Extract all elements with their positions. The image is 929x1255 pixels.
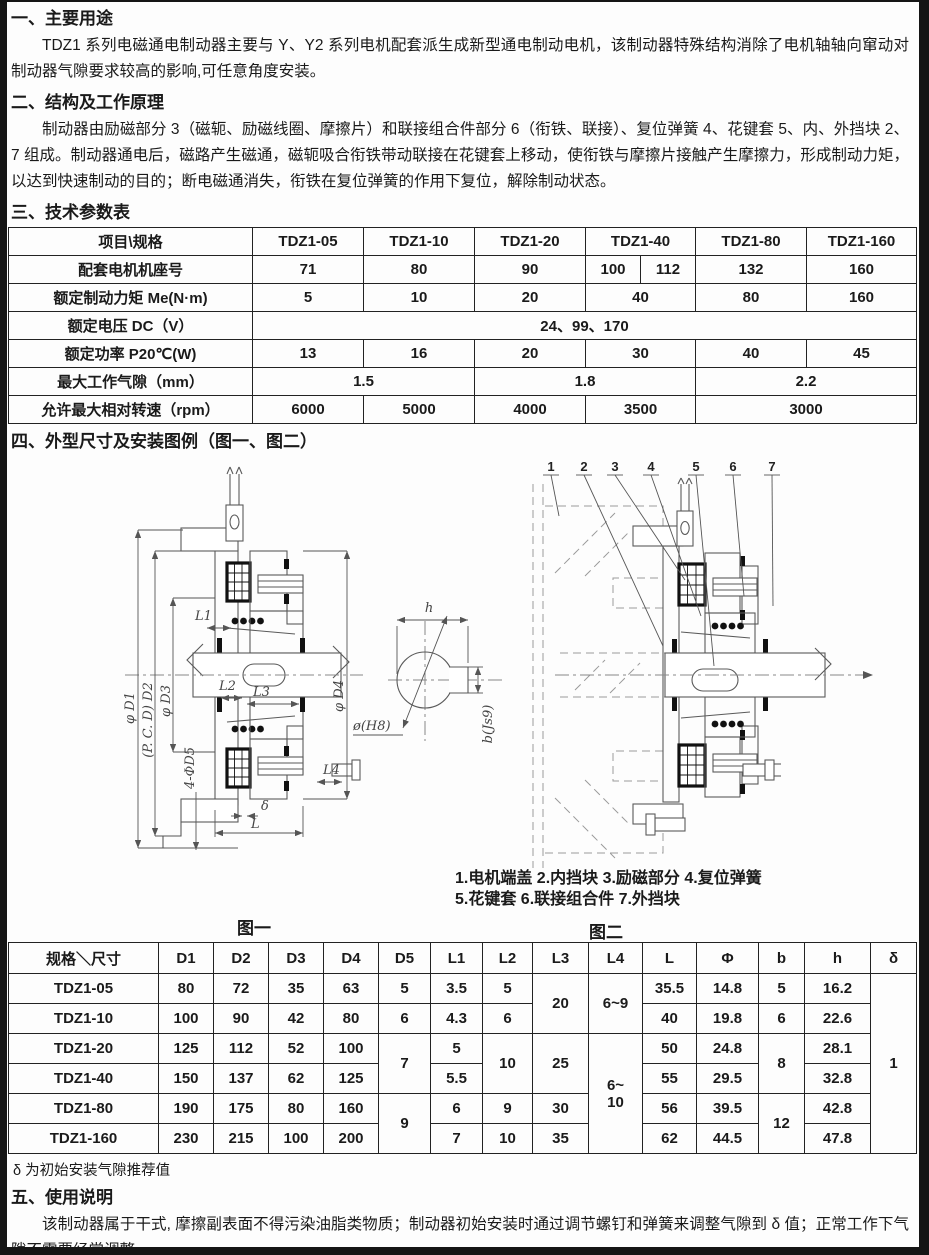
cell: 22.6 <box>805 1004 871 1034</box>
cell: 1.8 <box>475 368 696 396</box>
cell: 200 <box>324 1124 379 1154</box>
cell: 40 <box>643 1004 697 1034</box>
dim-label-key: b(Js9) <box>481 705 496 744</box>
table-row: TDZ1-20 125 112 52 100 7 5 10 25 6~ 10 5… <box>9 1034 917 1064</box>
cell: 12 <box>759 1094 805 1154</box>
row-label: 额定制动力矩 Me(N·m) <box>9 284 253 312</box>
cell: 30 <box>533 1094 589 1124</box>
header-cell: Φ <box>697 943 759 974</box>
row-label: 额定电压 DC（V） <box>9 312 253 340</box>
header-cell: TDZ1-160 <box>807 228 917 256</box>
cell: 24、99、170 <box>253 312 917 340</box>
cell: 100 <box>324 1034 379 1064</box>
row-label: 最大工作气隙（mm） <box>9 368 253 396</box>
cell: 45 <box>807 340 917 368</box>
cell: 9 <box>379 1094 431 1154</box>
dim-label-d3: φ D3 <box>159 685 174 717</box>
cell: 80 <box>324 1004 379 1034</box>
cell: 8 <box>759 1034 805 1094</box>
figure2-label: 图二 <box>589 918 623 943</box>
cell: 35.5 <box>643 974 697 1004</box>
cell: 2.2 <box>696 368 917 396</box>
cell: 6 <box>483 1004 533 1034</box>
header-cell: TDZ1-10 <box>364 228 475 256</box>
cell: 50 <box>643 1034 697 1064</box>
cell: 9 <box>483 1094 533 1124</box>
cell: 80 <box>159 974 214 1004</box>
figure1-label: 图一 <box>237 914 271 939</box>
cell: 90 <box>475 256 586 284</box>
header-cell: L <box>643 943 697 974</box>
cell: 6~9 <box>589 974 643 1034</box>
section1-heading: 一、主要用途 <box>11 7 919 31</box>
cell: 132 <box>696 256 807 284</box>
header-cell: L3 <box>533 943 589 974</box>
dim-label-bore: ø(H8) <box>352 719 391 734</box>
dim-label-l4: L4 <box>322 763 340 778</box>
cell: 40 <box>586 284 696 312</box>
cell: 10 <box>364 284 475 312</box>
callout-7: 7 <box>768 459 775 474</box>
dim-label-l2: L2 <box>218 679 236 694</box>
cell: 28.1 <box>805 1034 871 1064</box>
cell: 230 <box>159 1124 214 1154</box>
callout-1: 1 <box>547 459 554 474</box>
cell: 160 <box>807 256 917 284</box>
header-cell: L1 <box>431 943 483 974</box>
dim-label-d5: 4-ΦD5 <box>183 747 198 790</box>
figure2-parts-caption: 1.电机端盖 2.内挡块 3.励磁部分 4.复位弹簧 5.花键套 6.联接组合件… <box>455 868 762 910</box>
cell: 20 <box>475 340 586 368</box>
callout-2: 2 <box>580 459 587 474</box>
cell: 29.5 <box>697 1064 759 1094</box>
header-cell: b <box>759 943 805 974</box>
header-cell: D1 <box>159 943 214 974</box>
cell: 10 <box>483 1124 533 1154</box>
header-cell: TDZ1-80 <box>696 228 807 256</box>
header-cell: D5 <box>379 943 431 974</box>
cell: 72 <box>214 974 269 1004</box>
cell: 13 <box>253 340 364 368</box>
section1-body: TDZ1 系列电磁通电制动器主要与 Y、Y2 系列电机配套派生成新型通电制动电机… <box>11 33 909 85</box>
cell: 16 <box>364 340 475 368</box>
cell: 52 <box>269 1034 324 1064</box>
cell: 6000 <box>253 396 364 424</box>
cell: 42.8 <box>805 1094 871 1124</box>
row-label: 配套电机机座号 <box>9 256 253 284</box>
cell: 32.8 <box>805 1064 871 1094</box>
header-cell: 规格＼尺寸 <box>9 943 159 974</box>
dim-label-d4: φ D4 <box>332 680 347 712</box>
table-row: 允许最大相对转速（rpm） 6000 5000 4000 3500 3000 <box>9 396 917 424</box>
cell: 80 <box>696 284 807 312</box>
callout-3: 3 <box>611 459 618 474</box>
cell: 5 <box>431 1034 483 1064</box>
row-label: TDZ1-10 <box>9 1004 159 1034</box>
dim-label-h: h <box>425 601 433 616</box>
cell: 20 <box>475 284 586 312</box>
cell: 150 <box>159 1064 214 1094</box>
table-row: 最大工作气隙（mm） 1.5 1.8 2.2 <box>9 368 917 396</box>
figure1-drawing: φ D1 (P. C. D) D2 φ D3 4-ΦD5 φ D4 L1 L2 … <box>95 458 525 903</box>
cell: 71 <box>253 256 364 284</box>
row-label: TDZ1-05 <box>9 974 159 1004</box>
cell: 42 <box>269 1004 324 1034</box>
cell: 6~ 10 <box>589 1034 643 1154</box>
cell: 160 <box>807 284 917 312</box>
cell: 125 <box>324 1064 379 1094</box>
section2-body: 制动器由励磁部分 3（磁轭、励磁线圈、摩擦片）和联接组合件部分 6（衔铁、联接）… <box>11 117 909 195</box>
section2-heading: 二、结构及工作原理 <box>11 91 919 115</box>
cell: 39.5 <box>697 1094 759 1124</box>
cell: 3000 <box>696 396 917 424</box>
cell: 190 <box>159 1094 214 1124</box>
cell: 20 <box>533 974 589 1034</box>
cell: 7 <box>379 1034 431 1094</box>
cell: 40 <box>696 340 807 368</box>
header-cell: D4 <box>324 943 379 974</box>
dim-label-d1: φ D1 <box>123 692 138 724</box>
cell: 80 <box>269 1094 324 1124</box>
header-cell: D2 <box>214 943 269 974</box>
callout-6: 6 <box>729 459 736 474</box>
header-cell: TDZ1-05 <box>253 228 364 256</box>
header-cell: δ <box>871 943 917 974</box>
table-row: TDZ1-10 100 90 42 80 6 4.3 6 40 19.8 6 2… <box>9 1004 917 1034</box>
cell: 5 <box>759 974 805 1004</box>
cell: 100 <box>269 1124 324 1154</box>
cell: 1 <box>871 974 917 1154</box>
cell: 14.8 <box>697 974 759 1004</box>
cell: 5 <box>253 284 364 312</box>
tech-params-table: 项目\规格 TDZ1-05 TDZ1-10 TDZ1-20 TDZ1-40 TD… <box>8 227 917 424</box>
figure2-drawing: 1 2 3 4 5 6 7 <box>515 458 885 878</box>
cell: 35 <box>533 1124 589 1154</box>
header-cell: h <box>805 943 871 974</box>
cell: 56 <box>643 1094 697 1124</box>
dim-label-l: L <box>250 817 260 832</box>
cell: 137 <box>214 1064 269 1094</box>
cell: 63 <box>324 974 379 1004</box>
row-label: TDZ1-40 <box>9 1064 159 1094</box>
header-cell: D3 <box>269 943 324 974</box>
cell: 19.8 <box>697 1004 759 1034</box>
cell: 47.8 <box>805 1124 871 1154</box>
cell: 215 <box>214 1124 269 1154</box>
row-label: TDZ1-160 <box>9 1124 159 1154</box>
table-row: 额定功率 P20℃(W) 13 16 20 30 40 45 <box>9 340 917 368</box>
row-label: 额定功率 P20℃(W) <box>9 340 253 368</box>
delta-footnote: δ 为初始安装气隙推荐值 <box>13 1159 919 1180</box>
header-cell: 项目\规格 <box>9 228 253 256</box>
table-row: 配套电机机座号 71 80 90 100 112 132 160 <box>9 256 917 284</box>
cell: 5.5 <box>431 1064 483 1094</box>
cell: 112 <box>214 1034 269 1064</box>
cell: 24.8 <box>697 1034 759 1064</box>
header-cell: L2 <box>483 943 533 974</box>
cell: 6 <box>759 1004 805 1034</box>
cell: 16.2 <box>805 974 871 1004</box>
document-page: 一、主要用途 TDZ1 系列电磁通电制动器主要与 Y、Y2 系列电机配套派生成新… <box>7 2 919 1247</box>
cell: 1.5 <box>253 368 475 396</box>
section5-body: 该制动器属于干式, 摩擦副表面不得污染油脂类物质；制动器初始安装时通过调节螺钉和… <box>11 1212 909 1247</box>
dimensions-table: 规格＼尺寸 D1 D2 D3 D4 D5 L1 L2 L3 L4 L Φ b h… <box>8 942 917 1154</box>
cell: 7 <box>431 1124 483 1154</box>
table-row: 额定电压 DC（V） 24、99、170 <box>9 312 917 340</box>
cell: 112 <box>641 256 696 284</box>
callout-4: 4 <box>647 459 655 474</box>
cell: 5 <box>379 974 431 1004</box>
dim-label-l1: L1 <box>194 609 212 624</box>
cell: 90 <box>214 1004 269 1034</box>
cell: 62 <box>269 1064 324 1094</box>
section5-heading: 五、使用说明 <box>11 1186 919 1210</box>
cell: 5 <box>483 974 533 1004</box>
dim-label-delta: δ <box>261 799 269 814</box>
cell: 125 <box>159 1034 214 1064</box>
cell: 3500 <box>586 396 696 424</box>
cell: 4.3 <box>431 1004 483 1034</box>
callout-5: 5 <box>692 459 699 474</box>
cell: 5000 <box>364 396 475 424</box>
cell: 35 <box>269 974 324 1004</box>
table-row: TDZ1-80 190 175 80 160 9 6 9 30 56 39.5 … <box>9 1094 917 1124</box>
table-row: TDZ1-05 80 72 35 63 5 3.5 5 20 6~9 35.5 … <box>9 974 917 1004</box>
table-row: 规格＼尺寸 D1 D2 D3 D4 D5 L1 L2 L3 L4 L Φ b h… <box>9 943 917 974</box>
cell: 30 <box>586 340 696 368</box>
cell: 175 <box>214 1094 269 1124</box>
dim-label-d2: (P. C. D) D2 <box>141 682 156 758</box>
cell: 100 <box>586 256 641 284</box>
row-label: 允许最大相对转速（rpm） <box>9 396 253 424</box>
row-label: TDZ1-80 <box>9 1094 159 1124</box>
cell: 4000 <box>475 396 586 424</box>
cell: 100 <box>159 1004 214 1034</box>
section3-heading: 三、技术参数表 <box>11 201 919 225</box>
cell: 160 <box>324 1094 379 1124</box>
header-cell: TDZ1-20 <box>475 228 586 256</box>
cell: 55 <box>643 1064 697 1094</box>
figures-area: φ D1 (P. C. D) D2 φ D3 4-ΦD5 φ D4 L1 L2 … <box>7 456 919 940</box>
caption-line-2: 5.花键套 6.联接组合件 7.外挡块 <box>455 889 762 910</box>
dim-label-l3: L3 <box>252 685 270 700</box>
cell: 25 <box>533 1034 589 1094</box>
table-row: 项目\规格 TDZ1-05 TDZ1-10 TDZ1-20 TDZ1-40 TD… <box>9 228 917 256</box>
cell: 6 <box>431 1094 483 1124</box>
header-cell: L4 <box>589 943 643 974</box>
header-cell: TDZ1-40 <box>586 228 696 256</box>
cell: 10 <box>483 1034 533 1094</box>
cell: 44.5 <box>697 1124 759 1154</box>
cell: 80 <box>364 256 475 284</box>
caption-line-1: 1.电机端盖 2.内挡块 3.励磁部分 4.复位弹簧 <box>455 868 762 889</box>
table-row: 额定制动力矩 Me(N·m) 5 10 20 40 80 160 <box>9 284 917 312</box>
section4-heading: 四、外型尺寸及安装图例（图一、图二） <box>11 430 919 454</box>
row-label: TDZ1-20 <box>9 1034 159 1064</box>
cell: 6 <box>379 1004 431 1034</box>
cell: 62 <box>643 1124 697 1154</box>
cell: 3.5 <box>431 974 483 1004</box>
